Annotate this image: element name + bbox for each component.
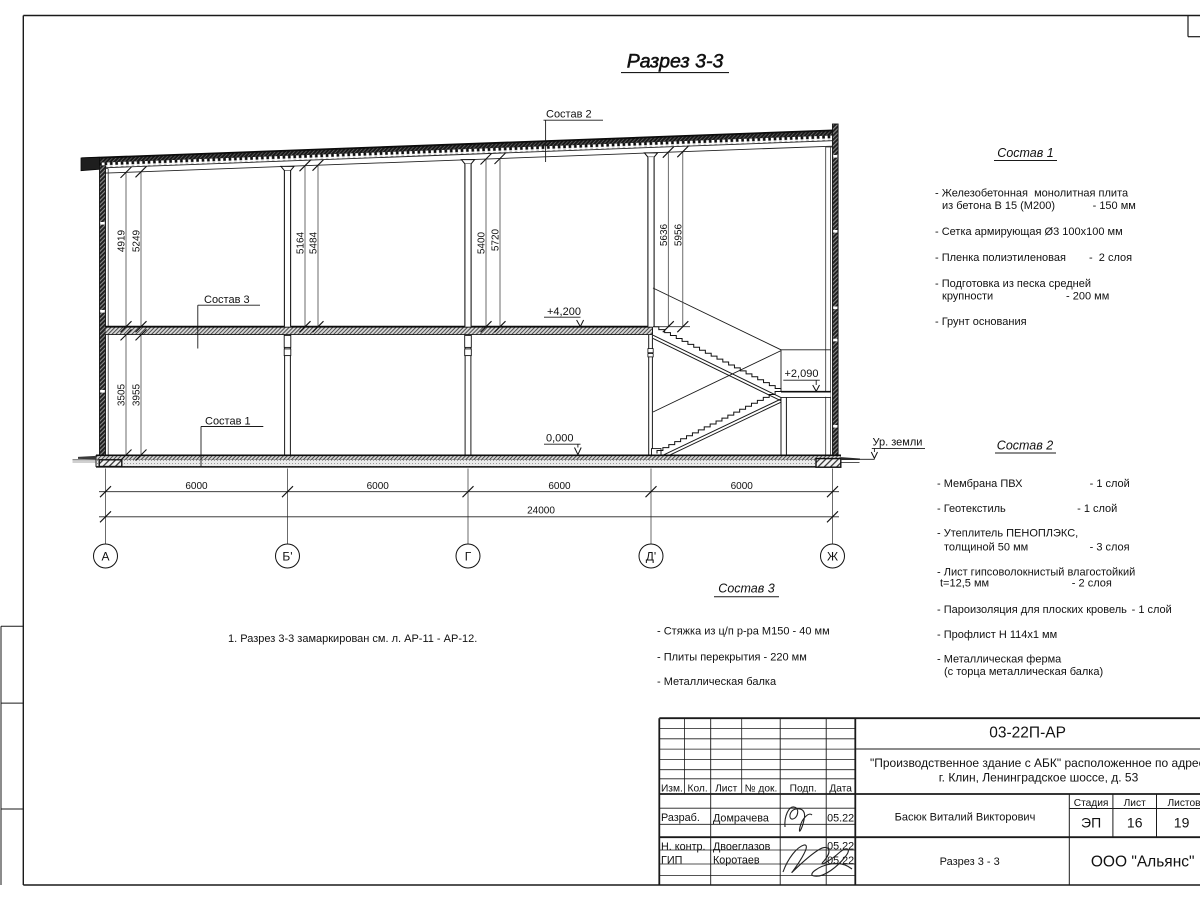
svg-text:03-22П-АР: 03-22П-АР: [989, 725, 1066, 742]
svg-text:- Профлист Н 114х1 мм: - Профлист Н 114х1 мм: [937, 629, 1057, 641]
svg-text:t=12,5 мм: t=12,5 мм: [940, 577, 989, 589]
svg-text:Д': Д': [646, 549, 656, 563]
svg-text:Б': Б': [282, 549, 292, 563]
svg-text:из бетона В 15 (М200): из бетона В 15 (М200): [942, 200, 1055, 212]
svg-text:ООО "Альянс": ООО "Альянс": [1091, 854, 1195, 871]
svg-text:Г: Г: [465, 549, 472, 563]
svg-text:+4,200: +4,200: [547, 306, 581, 318]
svg-text:Разраб.: Разраб.: [661, 812, 700, 824]
svg-text:- Плиты перекрытия - 220 мм: - Плиты перекрытия - 220 мм: [657, 652, 807, 664]
svg-text:6000: 6000: [367, 481, 390, 492]
svg-text:ЭП: ЭП: [1081, 815, 1101, 831]
svg-text:Состав 1: Состав 1: [205, 415, 251, 427]
svg-text:5484: 5484: [309, 231, 320, 254]
svg-text:6000: 6000: [185, 481, 208, 492]
svg-text:5636: 5636: [659, 223, 670, 246]
svg-text:Состав 2: Состав 2: [997, 439, 1053, 453]
svg-text:05.22: 05.22: [827, 840, 854, 852]
svg-text:- 200 мм: - 200 мм: [1066, 291, 1109, 303]
svg-text:+2,090: +2,090: [785, 368, 819, 380]
svg-text:Стадия: Стадия: [1074, 798, 1109, 809]
svg-text:4919: 4919: [117, 229, 128, 252]
svg-text:Разрез 3-3: Разрез 3-3: [627, 51, 724, 73]
svg-text:- Пароизоляция для плоских кро: - Пароизоляция для плоских кровель: [937, 604, 1127, 616]
svg-text:Лист: Лист: [1124, 798, 1146, 809]
svg-text:- 1 слой: - 1 слой: [1090, 478, 1130, 490]
svg-text:- Железобетонная монолитная п: - Железобетонная монолитная плита: [935, 187, 1129, 199]
svg-text:6000: 6000: [548, 481, 571, 492]
svg-text:5400: 5400: [477, 231, 488, 254]
svg-text:- 2 слоя: - 2 слоя: [1072, 577, 1112, 589]
svg-text:Н. контр.: Н. контр.: [661, 841, 706, 853]
svg-text:- Грунт основания: - Грунт основания: [935, 316, 1027, 328]
svg-text:Состав 2: Состав 2: [546, 108, 592, 120]
svg-text:3505: 3505: [117, 383, 128, 406]
svg-text:05.22: 05.22: [827, 855, 854, 867]
svg-text:19: 19: [1174, 815, 1190, 831]
svg-text:05.22: 05.22: [827, 813, 854, 825]
svg-text:Листов: Листов: [1167, 798, 1200, 809]
svg-text:5249: 5249: [132, 229, 143, 252]
svg-text:- Сетка армирующая Ø3 100х100: - Сетка армирующая Ø3 100х100 мм: [935, 226, 1123, 238]
svg-text:- Металлическая балка: - Металлическая балка: [657, 676, 777, 688]
svg-text:- Утеплитель ПЕНОПЛЭКС,: - Утеплитель ПЕНОПЛЭКС,: [937, 528, 1078, 540]
svg-text:6000: 6000: [731, 481, 754, 492]
svg-text:г. Клин, Ленинградское шоссе,: г. Клин, Ленинградское шоссе, д. 53: [939, 770, 1139, 784]
svg-text:- Геотекстиль: - Геотекстиль: [937, 503, 1006, 515]
svg-text:Состав 3: Состав 3: [718, 581, 774, 595]
svg-text:А: А: [101, 549, 109, 563]
svg-text:толщиной 50 мм: толщиной 50 мм: [944, 542, 1028, 554]
svg-text:5164: 5164: [296, 231, 307, 254]
svg-text:- Мембрана ПВХ: - Мембрана ПВХ: [937, 478, 1023, 490]
svg-text:крупности: крупности: [942, 291, 993, 303]
svg-text:Коротаев: Коротаев: [713, 855, 760, 867]
svg-text:Лист: Лист: [715, 784, 737, 795]
svg-text:0,000: 0,000: [546, 432, 574, 444]
svg-text:Разрез 3 - 3: Разрез 3 - 3: [940, 856, 1000, 868]
svg-text:- 150 мм: - 150 мм: [1093, 200, 1136, 212]
svg-text:- Стяжка из ц/п р-ра М150 - 40: - Стяжка из ц/п р-ра М150 - 40 мм: [657, 625, 830, 637]
svg-text:- 2 слоя: - 2 слоя: [1089, 252, 1132, 264]
svg-text:- Подготовка из песка средней: - Подготовка из песка средней: [935, 278, 1091, 290]
svg-text:- 3 слоя: - 3 слоя: [1090, 542, 1130, 554]
svg-text:5720: 5720: [491, 228, 502, 251]
svg-text:Дата: Дата: [829, 784, 852, 795]
svg-text:Басюк Виталий Викторович: Басюк Виталий Викторович: [895, 812, 1036, 824]
svg-text:3955: 3955: [132, 383, 143, 406]
svg-text:"Производственное здание с АБК: "Производственное здание с АБК" располож…: [870, 756, 1200, 770]
svg-text:Подп.: Подп.: [790, 784, 817, 795]
svg-text:Домрачева: Домрачева: [713, 813, 769, 825]
svg-text:16: 16: [1127, 815, 1143, 831]
svg-text:1. Разрез 3-3 замаркирован см.: 1. Разрез 3-3 замаркирован см. л. АР-11 …: [228, 633, 477, 645]
svg-text:Двоеглазов: Двоеглазов: [713, 841, 771, 853]
svg-text:- 1 слой: - 1 слой: [1077, 503, 1117, 515]
svg-text:Изм.: Изм.: [661, 784, 683, 795]
svg-text:(с торца металлическая балка): (с торца металлическая балка): [944, 666, 1103, 678]
svg-text:5956: 5956: [674, 223, 685, 246]
svg-text:- Пленка полиэтиленовая: - Пленка полиэтиленовая: [935, 252, 1066, 264]
svg-text:Кол.: Кол.: [688, 784, 708, 795]
svg-text:- Металлическая ферма: - Металлическая ферма: [937, 654, 1062, 666]
svg-text:ГИП: ГИП: [661, 855, 682, 867]
svg-text:- 1 слой: - 1 слой: [1132, 604, 1172, 616]
svg-text:Состав 3: Состав 3: [204, 294, 250, 306]
svg-text:Ж: Ж: [827, 549, 838, 563]
svg-text:Состав 1: Состав 1: [997, 146, 1053, 160]
svg-text:24000: 24000: [527, 506, 555, 517]
svg-text:Ур. земли: Ур. земли: [873, 437, 923, 449]
svg-text:№ док.: № док.: [745, 784, 778, 795]
